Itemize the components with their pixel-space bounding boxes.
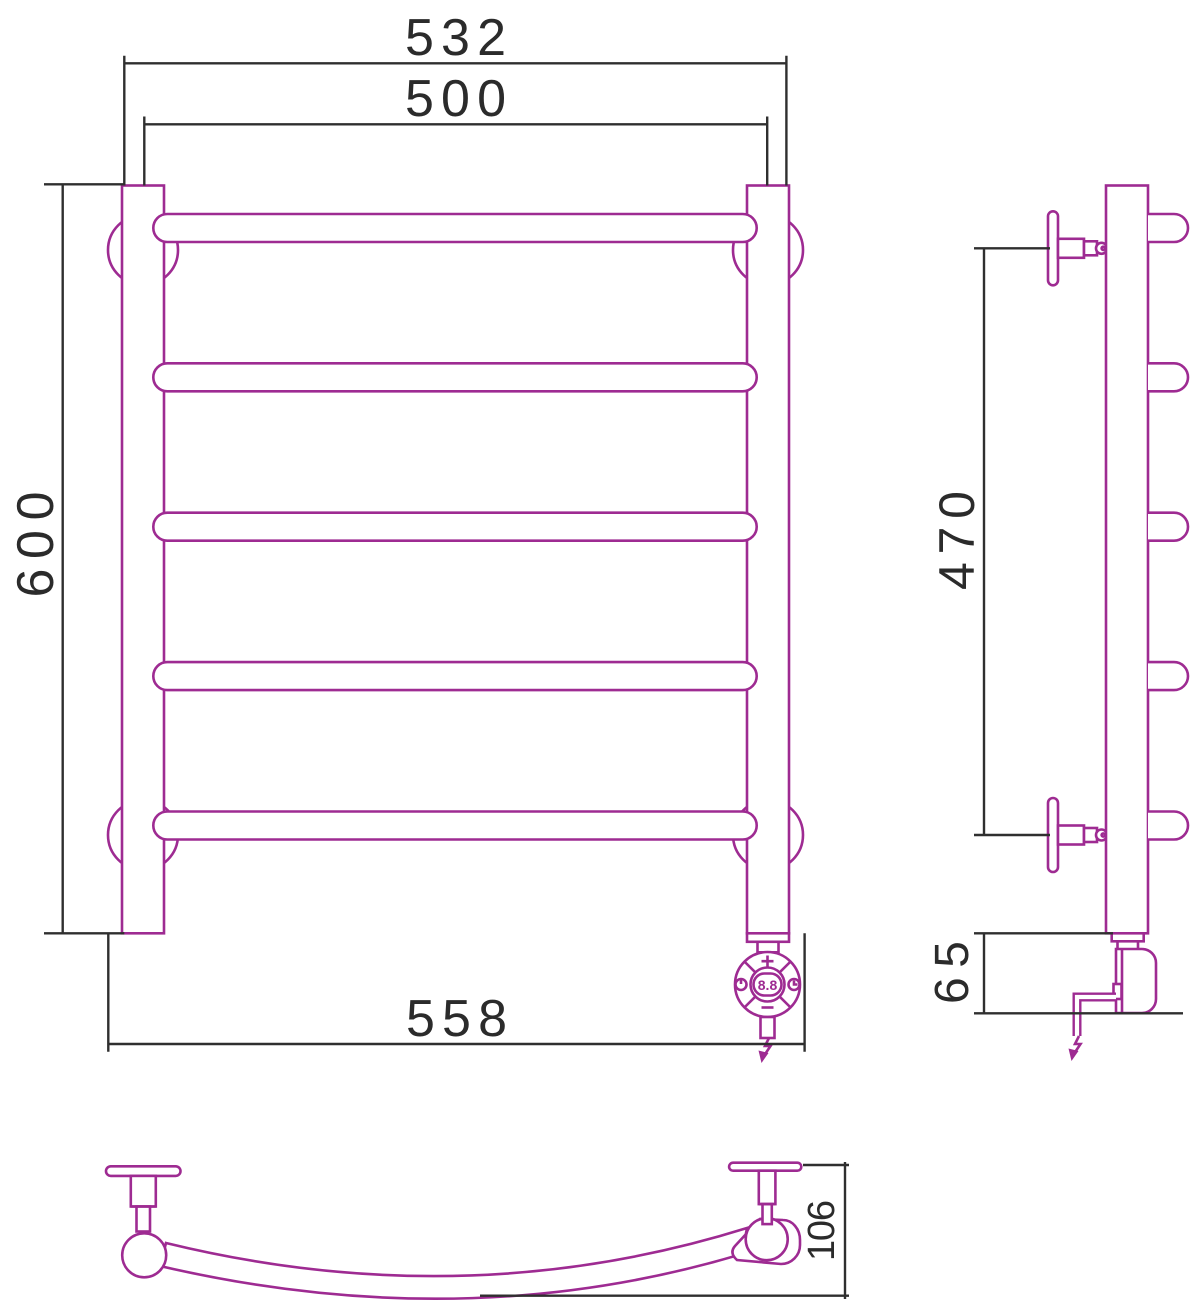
plus-label: + <box>762 949 774 971</box>
dim-65-value: 65 <box>926 942 979 1004</box>
dim-532-value: 532 <box>405 9 505 67</box>
rung-2 <box>153 363 756 391</box>
side-rung-stub-2 <box>1148 363 1188 391</box>
rung-1 <box>153 214 756 242</box>
dim-106-value: 106 <box>801 1201 843 1261</box>
plan-neck-right <box>763 1204 772 1224</box>
minus-label: − <box>762 995 774 1017</box>
technical-drawing-canvas: 8.8 <box>0 0 1200 1312</box>
curved-rung <box>160 1228 747 1299</box>
side-rung-stub-1 <box>1148 214 1188 242</box>
plan-neck-left <box>137 1207 151 1232</box>
power-cable-core <box>1077 997 1116 1036</box>
dimensions: 532 500 600 558 470 65 106 <box>7 9 1183 1299</box>
side-rung-stub-4 <box>1148 662 1188 690</box>
plan-stem-left <box>131 1176 156 1207</box>
dim-600-value: 600 <box>7 493 65 598</box>
plan-wall-flange-left <box>106 1166 181 1176</box>
dim-470-value: 470 <box>929 492 985 590</box>
dimension-500: 500 <box>144 70 767 186</box>
dimension-470: 470 <box>929 248 1050 835</box>
display-value: 8.8 <box>758 977 778 993</box>
dimension-600: 600 <box>7 184 124 933</box>
plan-bracket-right <box>729 1163 801 1264</box>
rung-5 <box>153 812 756 840</box>
front-view: 8.8 <box>108 186 803 1064</box>
rung-4 <box>153 662 756 690</box>
side-heater-box <box>1069 933 1157 1061</box>
side-bracket-top <box>1048 211 1107 285</box>
dimension-558: 558 <box>108 933 804 1051</box>
rung-3 <box>153 513 756 541</box>
towel-warmer-drawing: 8.8 <box>0 0 1200 1312</box>
cable-stub <box>761 1017 775 1038</box>
bottom-view <box>106 1163 801 1299</box>
side-rung-stub-5 <box>1148 812 1188 840</box>
side-bracket-bottom <box>1048 798 1107 872</box>
power-cable-outer <box>1077 997 1116 1036</box>
plan-stem-right <box>759 1171 776 1204</box>
dim-558-value: 558 <box>406 990 506 1048</box>
side-post <box>1106 186 1148 934</box>
side-rung-stub-3 <box>1148 513 1188 541</box>
side-view <box>1048 186 1188 1062</box>
plan-post-section-left <box>122 1233 166 1277</box>
dim-500-value: 500 <box>405 70 505 128</box>
dim-470-lines <box>974 248 1050 835</box>
bracket-arm-bottom <box>1058 826 1084 845</box>
bracket-arm-top <box>1058 239 1084 258</box>
